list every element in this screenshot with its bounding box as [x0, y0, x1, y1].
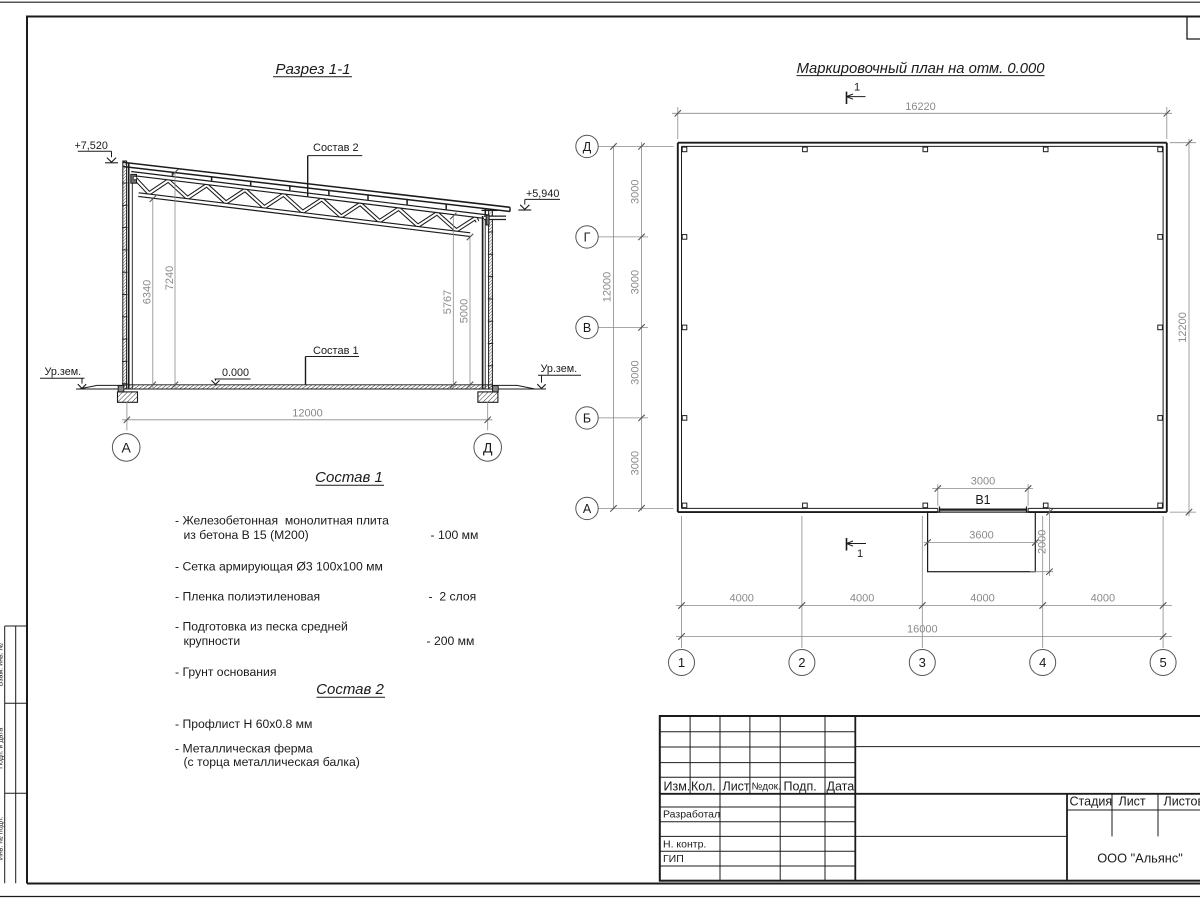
svg-text:В1: В1 — [975, 493, 990, 507]
svg-text:Ур.зем.: Ур.зем. — [541, 363, 578, 375]
svg-text:12200: 12200 — [1177, 312, 1189, 343]
svg-text:№док.: №док. — [752, 782, 781, 793]
svg-text:+7,520: +7,520 — [75, 140, 108, 152]
svg-text:3000: 3000 — [971, 476, 995, 488]
svg-text:3000: 3000 — [630, 270, 642, 294]
svg-text:+5,940: +5,940 — [526, 188, 559, 200]
svg-text:Разрез 1-1: Разрез 1-1 — [275, 61, 350, 78]
svg-text:Стадия: Стадия — [1070, 795, 1113, 809]
svg-text:4: 4 — [1039, 655, 1046, 670]
svg-text:А: А — [583, 502, 592, 516]
svg-text:1: 1 — [678, 655, 685, 670]
svg-text:16000: 16000 — [907, 624, 938, 636]
svg-text:2: 2 — [798, 655, 805, 670]
svg-text:из бетона В 15 (М200): из бетона В 15 (М200) — [184, 528, 309, 542]
svg-text:- Железобетонная монолитная п: - Железобетонная монолитная плита — [175, 514, 389, 528]
svg-text:3: 3 — [919, 655, 926, 670]
svg-text:Состав 1: Состав 1 — [315, 469, 383, 486]
svg-text:Кол.: Кол. — [691, 780, 716, 794]
svg-text:Листов: Листов — [1164, 795, 1200, 809]
svg-text:Взам. инв. №: Взам. инв. № — [0, 643, 5, 686]
svg-text:Дата: Дата — [827, 780, 855, 794]
svg-text:Подп.: Подп. — [784, 780, 817, 794]
svg-text:5767: 5767 — [442, 290, 454, 314]
svg-text:Н. контр.: Н. контр. — [663, 838, 706, 850]
svg-text:6340: 6340 — [142, 280, 154, 304]
svg-text:Д: Д — [583, 140, 592, 154]
svg-text:Изм.: Изм. — [664, 780, 691, 794]
svg-text:- Подготовка из песка средней: - Подготовка из песка средней — [175, 620, 348, 634]
svg-text:А: А — [122, 439, 132, 455]
svg-text:- 100 мм: - 100 мм — [431, 528, 479, 542]
svg-text:- Металлическая ферма: - Металлическая ферма — [175, 742, 313, 756]
svg-text:Состав 1: Состав 1 — [313, 345, 359, 357]
svg-text:Ур.зем.: Ур.зем. — [45, 366, 82, 378]
svg-text:В: В — [583, 321, 591, 335]
svg-text:- Пленка полиэтиленовая: - Пленка полиэтиленовая — [175, 590, 320, 604]
svg-text:7240: 7240 — [164, 266, 176, 290]
svg-text:Д: Д — [483, 439, 493, 455]
svg-text:4000: 4000 — [729, 593, 753, 605]
svg-text:Г: Г — [584, 230, 591, 244]
svg-text:16220: 16220 — [905, 101, 936, 113]
svg-text:5: 5 — [1159, 655, 1166, 670]
svg-text:4000: 4000 — [850, 593, 874, 605]
svg-text:5000: 5000 — [459, 299, 471, 323]
svg-text:Маркировочный план на отм. 0.0: Маркировочный план на отм. 0.000 — [797, 61, 1046, 77]
svg-text:Разработал: Разработал — [663, 809, 720, 821]
svg-text:ГИП: ГИП — [663, 853, 684, 865]
svg-text:- Грунт основания: - Грунт основания — [175, 665, 276, 679]
svg-text:Лист: Лист — [1119, 795, 1146, 809]
svg-text:Состав 2: Состав 2 — [316, 681, 384, 698]
svg-text:- 200 мм: - 200 мм — [427, 634, 475, 648]
svg-text:1: 1 — [857, 548, 863, 560]
svg-text:12000: 12000 — [602, 272, 614, 303]
svg-text:4000: 4000 — [970, 593, 994, 605]
svg-text:- Сетка армирующая Ø3 100х100: - Сетка армирующая Ø3 100х100 мм — [175, 559, 383, 573]
svg-text:Подп. и дата: Подп. и дата — [0, 728, 5, 769]
svg-text:Лист: Лист — [723, 780, 750, 794]
svg-text:3000: 3000 — [630, 179, 642, 203]
svg-text:- Профлист Н 60х0.8 мм: - Профлист Н 60х0.8 мм — [175, 717, 312, 731]
svg-text:4000: 4000 — [1091, 593, 1115, 605]
svg-text:2000: 2000 — [1037, 530, 1049, 554]
svg-text:3000: 3000 — [630, 360, 642, 384]
svg-text:крупности: крупности — [184, 634, 241, 648]
svg-text:0.000: 0.000 — [222, 367, 249, 379]
svg-text:Б: Б — [583, 411, 591, 425]
svg-text:(с торца металлическая балка): (с торца металлическая балка) — [184, 755, 360, 769]
svg-text:- 2 слоя: - 2 слоя — [429, 590, 477, 604]
svg-text:3600: 3600 — [969, 530, 993, 542]
svg-text:12000: 12000 — [292, 408, 323, 420]
svg-text:1: 1 — [854, 82, 860, 94]
svg-text:ООО "Альянс": ООО "Альянс" — [1097, 851, 1183, 866]
svg-text:3000: 3000 — [630, 451, 642, 475]
svg-text:Инв. № подл.: Инв. № подл. — [0, 816, 5, 860]
svg-text:Состав 2: Состав 2 — [313, 142, 359, 154]
